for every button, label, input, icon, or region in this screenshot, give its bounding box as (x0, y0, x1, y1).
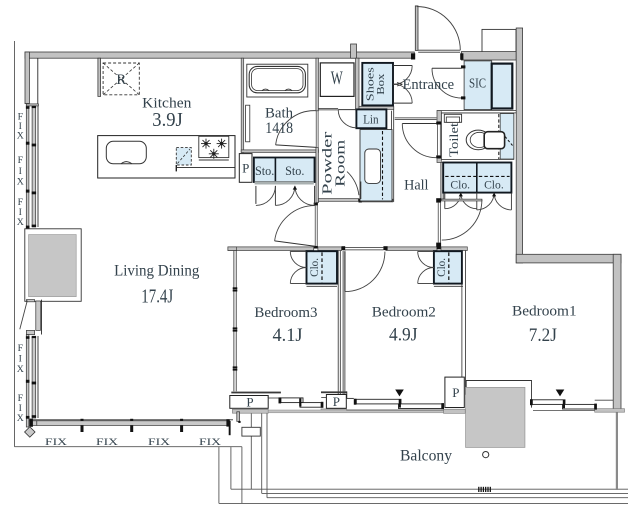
svg-text:P: P (242, 161, 249, 176)
svg-text:3.9J: 3.9J (152, 110, 183, 131)
svg-text:FIX: FIX (148, 437, 170, 448)
svg-text:P: P (246, 395, 253, 410)
svg-text:Clo.: Clo. (436, 258, 448, 277)
svg-text:Shoes: Shoes (365, 67, 376, 101)
svg-text:P: P (452, 385, 459, 400)
svg-text:Sto.: Sto. (285, 164, 304, 178)
svg-text:Bedroom1: Bedroom1 (512, 302, 577, 319)
svg-text:4.1J: 4.1J (273, 325, 303, 346)
svg-text:R: R (116, 72, 126, 88)
svg-text:Bedroom3: Bedroom3 (254, 304, 317, 321)
svg-text:Clo.: Clo. (309, 258, 321, 277)
svg-text:Hall: Hall (404, 177, 428, 193)
svg-text:FIX: FIX (45, 437, 67, 448)
svg-text:17.4J: 17.4J (141, 287, 173, 308)
svg-text:Entrance: Entrance (403, 76, 455, 93)
svg-text:SIC: SIC (469, 76, 486, 91)
svg-text:1418: 1418 (265, 118, 293, 137)
svg-text:FIX: FIX (199, 437, 221, 448)
svg-text:FIX: FIX (96, 437, 118, 448)
svg-text:Clo.: Clo. (450, 178, 470, 191)
svg-text:Toilet: Toilet (446, 123, 461, 157)
svg-text:Room: Room (332, 139, 347, 186)
svg-text:7.2J: 7.2J (529, 325, 557, 346)
svg-text:Box: Box (376, 74, 387, 95)
svg-text:Bedroom2: Bedroom2 (372, 303, 436, 320)
svg-text:Clo.: Clo. (484, 178, 504, 191)
svg-text:Sto.: Sto. (255, 164, 274, 178)
svg-text:Living Dining: Living Dining (114, 262, 199, 279)
svg-text:P: P (333, 394, 340, 409)
svg-text:4.9J: 4.9J (389, 325, 418, 346)
svg-text:Balcony: Balcony (400, 447, 452, 464)
svg-text:W: W (331, 68, 343, 89)
svg-text:Lin: Lin (363, 112, 379, 127)
